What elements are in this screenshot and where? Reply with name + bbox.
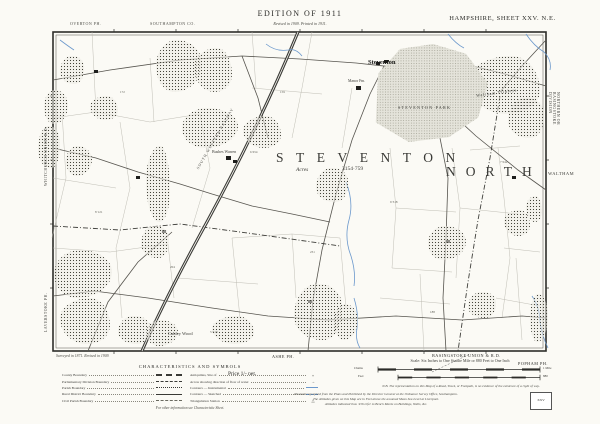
legend-label: Parish Boundary [62,386,85,390]
legend-title: CHARACTERISTICS AND SYMBOLS [95,364,285,369]
legend-leader [95,400,154,402]
wood-patch [526,196,542,222]
sheet-title: HAMPSHIRE, SHEET XXV. N.E. [430,15,575,22]
bushes-warren-label: Bushes Warren [212,149,236,154]
legend-leader [251,381,306,383]
wood-patch [146,146,170,222]
parish-name-north: NORTH [446,164,542,180]
left-margin-union-label: WHITCHURCH UNION R.D. [44,126,48,186]
parcel-number: 7·042 [500,160,507,164]
legend-leader [98,393,154,395]
civil-parish-boundary-sample [156,400,182,401]
imprint-block: Photozincographed from the Plans and Pub… [228,392,524,406]
right-of-way-note: N.B. The representation on this Map of a… [330,384,592,388]
antiquity-symbol: + [308,373,318,378]
legend-row: Civil Parish Boundary [62,398,182,404]
wood-patch [508,98,544,138]
county-boundary-sample [156,374,182,376]
legend-label: County Boundary [62,373,87,377]
edition-title: EDITION OF 1911 [240,9,360,18]
top-margin-parish-label: OVERTON PH. [70,21,101,26]
rural-district-boundary-sample [156,394,182,395]
legend-left-column: County Boundary Parliamentary Division B… [62,372,182,404]
sheet-index-label: XXV [531,398,551,402]
legend-leader [111,381,154,383]
wood-patch [243,116,281,148]
parcel-number: 9·318 [390,200,397,204]
parcel-number: 6·654 [250,150,257,154]
legend-label: Civil Parish Boundary [62,399,93,403]
wood-patch [468,292,496,318]
manor-farm-label: Manor Fm. [348,79,365,83]
legend-label: Rural District Boundary [62,392,96,396]
parcel-number: 159 [280,90,285,94]
wood-patch [38,126,60,168]
contour-instrumental-sample [306,387,318,388]
scale-bar2-right-label: 880 [543,374,548,378]
flow-arrow-symbol: → [308,379,318,384]
legend-label: Arrow showing direction of flow of water [190,380,249,384]
legend-label: Contours — Instrumental [190,386,226,390]
scale-bar2-left-label: Feet [358,374,364,378]
survey-note: Surveyed in 1871. Revised in 1909. [56,354,109,358]
parish-name-steventon: STEVENTON [276,150,468,166]
parcel-number: 204 [170,265,175,269]
legend-leader [87,387,154,389]
wood-patch [194,48,232,92]
parcel-number: 5·210 [210,330,217,334]
steventon-park-label: STEVENTON PARK [398,105,451,110]
wood-patch [141,226,169,258]
waltham-continuation-label: WALTHAM [548,171,574,176]
right-margin-division-label: NORTHERN OR BASINGSTOKE DIVISION [548,92,560,132]
cubley-wood-label: Cubley Wood [168,331,193,336]
wood-patch [60,56,84,84]
legend-leader [89,374,154,376]
parish-boundary-sample [156,387,182,388]
wood-patch [316,168,348,202]
legend-leader [228,387,304,389]
parliamentary-boundary-sample [156,381,182,382]
parcel-number: 8·121 [95,210,102,214]
parcel-number: 188 [430,310,435,314]
top-margin-county-label: SOUTHAMPTON CO. [150,21,195,26]
parcel-number: 172 [120,90,125,94]
legend-label: Antiquities, Site of [190,373,217,377]
legend-footer-note: For other information see Characteristic… [95,406,285,410]
scale-bar1-right-label: 1 Mile [543,366,551,370]
legend-label: Triangulation Station [190,399,220,403]
imprint-line: Altitudes indicated thus ·456 refer to B… [228,402,524,407]
left-margin-parish-label: LAVERSTOKE PH. [44,293,48,332]
acres-label: Acres [296,167,308,173]
bottom-margin-ashe-label: ASHE PH. [272,354,294,359]
legend-label: Parliamentary Division Boundary [62,380,109,384]
os-map-sheet: OVERTON PH. SOUTHAMPTON CO. EDITION OF 1… [0,0,600,424]
scale-bars [378,367,540,381]
edition-subtitle: Revised in 1909. Printed in 1911. [230,21,370,26]
scale-title: Scale: Six Inches to One Statute Mile or… [358,358,562,363]
village-name-steventon: Steventon [368,59,395,66]
wood-patch [90,96,118,120]
scale-bar1-left-label: Chains [354,366,363,370]
price-label: Price 1/- net. [228,371,256,377]
acres-value: 3154·759 [342,166,363,172]
wood-patch [212,316,254,344]
legend-label: Contours — Sketched [190,392,221,396]
parcel-number: 231 [310,250,315,254]
sheet-index-diagram: XXV [530,392,552,410]
